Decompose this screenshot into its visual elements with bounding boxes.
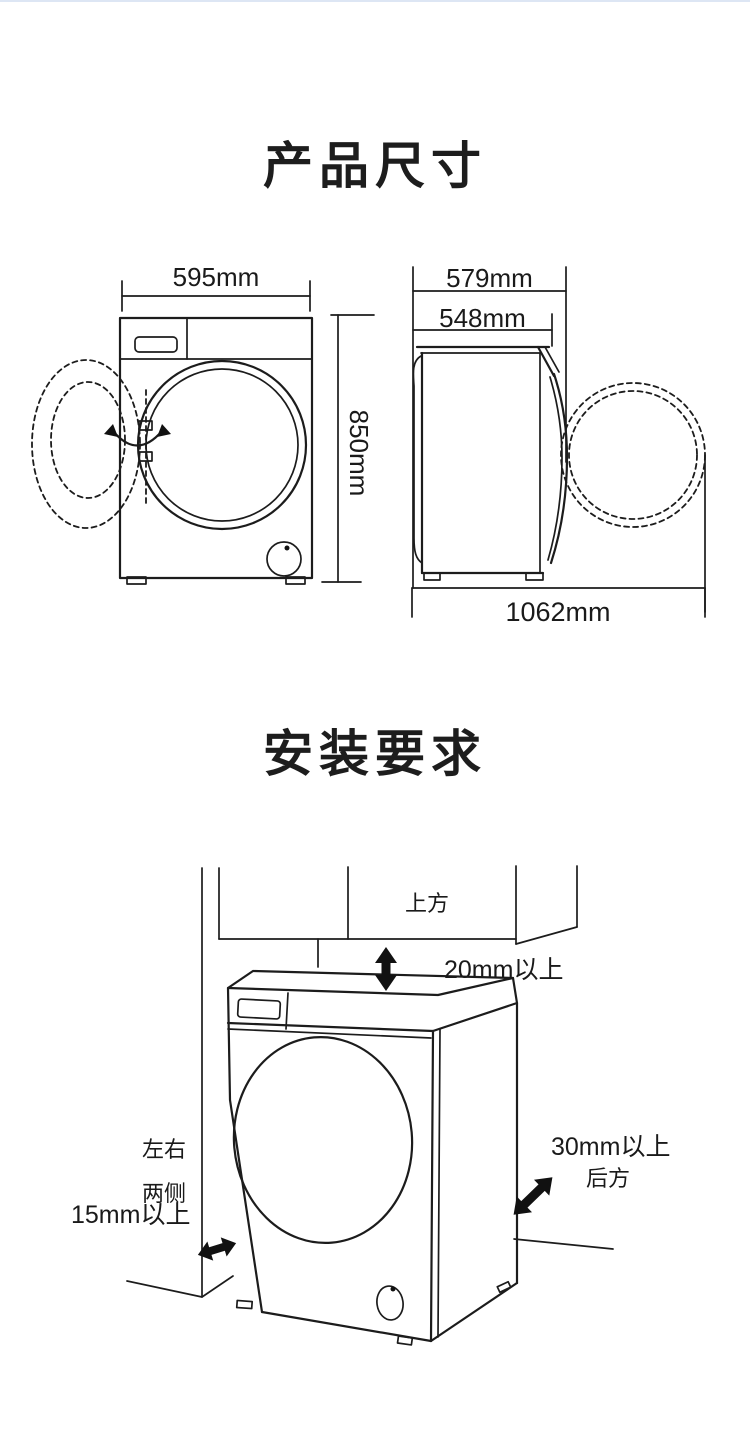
wall-and-cabinet-lines [202, 866, 577, 1297]
dim-label-depth-door-open: 1062mm [433, 597, 683, 628]
product-dimension-page: 产品尺寸 595mm 579mm 548mm 850mm 1062mm 安装要求… [0, 0, 750, 1437]
machine-foot [237, 1301, 252, 1309]
control-display [135, 337, 177, 352]
side-machine-body [413, 347, 567, 580]
knob-dot [285, 546, 290, 551]
knob-dot [391, 1287, 396, 1292]
door-circle [225, 1030, 420, 1251]
label-rear: 后方 [586, 1161, 630, 1193]
dim-label-front-height: 850mm [343, 408, 374, 498]
machine-foot [398, 1336, 413, 1345]
control-display [238, 999, 281, 1019]
installation-diagram [127, 866, 613, 1345]
door-bulge-outline [551, 374, 567, 563]
door-circle-inner [146, 369, 298, 521]
label-above-area: 上方 [405, 886, 449, 918]
swing-arrowhead-icon [104, 424, 118, 437]
installation-title: 安装要求 [0, 714, 750, 786]
label-rear-clearance: 30mm以上 [551, 1127, 670, 1163]
power-knob [267, 542, 301, 576]
label-above-clearance: 20mm以上 [444, 950, 563, 986]
swing-arrowhead-icon [157, 424, 171, 437]
product-dimensions-title: 产品尺寸 [0, 126, 750, 198]
label-sides-clearance: 15mm以上 [71, 1195, 190, 1231]
machine-3d [225, 971, 517, 1345]
door-circle-outer [138, 361, 306, 529]
front-machine-body [120, 318, 312, 584]
dim-label-side-depth-outer: 579mm [413, 263, 566, 294]
top-clearance-arrow-icon [375, 947, 397, 991]
floor-lines [127, 1239, 613, 1297]
side-door-open-dashed [561, 383, 705, 527]
label-sides-line1: 左右 [142, 1137, 186, 1162]
dim-label-side-depth-body: 548mm [413, 303, 552, 334]
machine-foot [497, 1282, 510, 1293]
dim-label-front-width: 595mm [122, 262, 310, 293]
rear-clearance-arrow-icon [506, 1169, 560, 1222]
front-view-diagram [32, 281, 374, 584]
power-knob [375, 1284, 405, 1321]
